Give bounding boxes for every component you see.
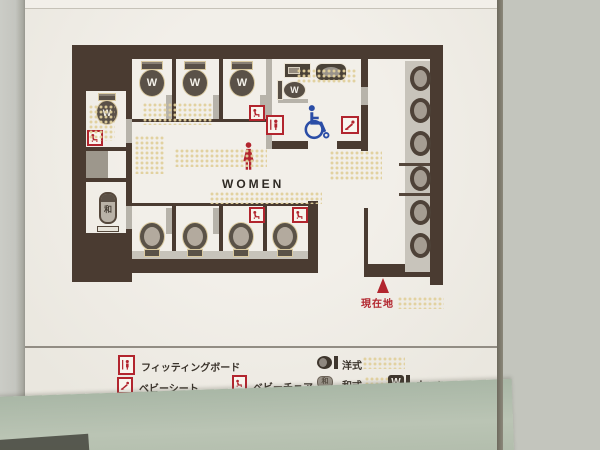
map-wall-right <box>430 45 443 285</box>
baby-sheet-icon <box>341 116 359 134</box>
washlet-mark: W <box>147 77 157 89</box>
accessible-room-bottom-wall-left <box>272 141 308 149</box>
baby-chair-icon <box>249 105 265 121</box>
sink <box>410 166 431 191</box>
toilet-tank-glyph <box>334 356 338 369</box>
top-stall-door-2 <box>213 95 219 119</box>
left-room-door-1 <box>126 119 132 143</box>
toilet-bowl: W <box>182 69 208 97</box>
accessible-room-right-door <box>361 87 368 105</box>
toilet-tank <box>187 249 203 257</box>
photo-of-restroom-map-sign: W W W W W <box>0 0 600 450</box>
map-wall-entry-partition <box>364 208 368 268</box>
sink <box>410 131 431 156</box>
braille-dots <box>143 103 213 125</box>
map-wall-bottom-stalls <box>126 259 318 273</box>
braille-dots <box>398 297 444 309</box>
washlet-toilet: W <box>139 61 165 97</box>
area-label: WOMEN <box>222 177 284 191</box>
baby-chair-icon <box>249 207 265 223</box>
map-wall-bottomleft-block <box>72 233 132 282</box>
counter-partition-bottom <box>399 193 430 196</box>
western-toilet <box>183 223 207 257</box>
sink <box>410 200 431 225</box>
braille-dots <box>135 136 165 174</box>
map-wall-entry-bottom <box>364 264 443 277</box>
toilet-bowl <box>273 223 297 250</box>
fitting-board-icon <box>266 115 284 135</box>
map-wall-stalls-right <box>308 201 318 273</box>
braille-dots <box>175 149 267 167</box>
glass-reflection <box>497 0 600 450</box>
wall-left-of-sign <box>0 0 26 450</box>
bottom-stall-door-2 <box>213 208 219 234</box>
western-toilet <box>140 223 164 257</box>
accessible-room-bottom-wall-right <box>337 141 368 149</box>
top-stall-divider-2 <box>219 59 223 122</box>
western-toilet-glyph <box>317 356 332 369</box>
legend-western-style-label: 洋式 <box>342 357 362 372</box>
you-are-here-arrow <box>377 278 389 293</box>
utility-closet <box>86 151 108 178</box>
legend-divider <box>25 346 497 348</box>
washlet-toilet: W <box>182 61 208 97</box>
braille-dots <box>89 105 115 141</box>
sink <box>410 66 431 91</box>
fitting-board-icon <box>118 355 135 375</box>
toilet-bowl <box>183 223 207 250</box>
legend-fitting-board-label: フィッティングボード <box>141 359 240 374</box>
toilet-bowl: W <box>139 69 165 97</box>
squat-toilet-hood <box>101 194 115 202</box>
left-room-door-2 <box>126 205 132 229</box>
wheelchair-icon <box>302 102 332 142</box>
baby-chair-icon <box>292 207 308 223</box>
sink <box>410 233 431 258</box>
accessible-room-right-wall <box>361 59 368 151</box>
japanese-style-mark: 和 <box>101 204 115 215</box>
braille-dots <box>210 192 322 204</box>
sign-board: W W W W W <box>25 8 497 398</box>
western-toilet <box>229 223 253 257</box>
toilet-bowl <box>140 223 164 250</box>
japanese-style-toilet: 和 <box>99 192 117 224</box>
braille-dots <box>297 69 357 84</box>
washlet-mark: W <box>190 77 200 89</box>
toilet-tank <box>277 249 293 257</box>
washlet-toilet: W <box>229 61 255 97</box>
squat-toilet-step <box>97 226 119 232</box>
braille-dots <box>363 357 405 369</box>
sink <box>410 98 431 123</box>
toilet-tank <box>144 249 160 257</box>
bottom-stall-door-1 <box>166 208 172 234</box>
braille-dots <box>330 151 382 181</box>
toilet-bowl <box>229 223 253 250</box>
washlet-mark: W <box>237 77 247 89</box>
washlet-mark: W <box>290 85 299 95</box>
counter-partition-top <box>399 163 430 166</box>
you-are-here-label: 現在地 <box>361 295 394 310</box>
toilet-bowl: W <box>229 69 255 97</box>
toilet-tank <box>233 249 249 257</box>
left-room-divider-2 <box>86 178 126 182</box>
accessible-room-left-wall <box>266 59 272 149</box>
western-toilet <box>273 223 297 257</box>
western-style-icon <box>317 356 338 369</box>
